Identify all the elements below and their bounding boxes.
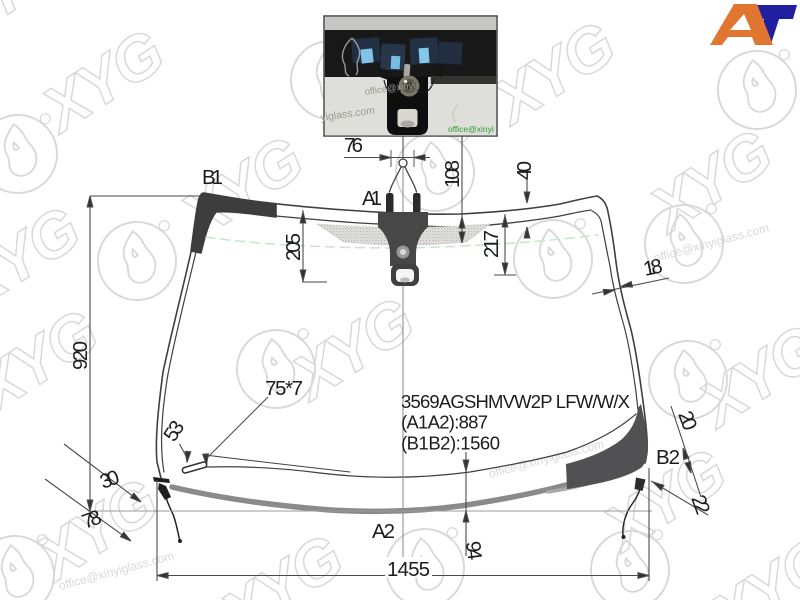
svg-text:108: 108 bbox=[441, 160, 464, 188]
svg-text:40: 40 bbox=[513, 161, 536, 180]
svg-text:(A1A2):887: (A1A2):887 bbox=[401, 412, 488, 433]
svg-text:75*7: 75*7 bbox=[265, 377, 303, 400]
svg-text:(B1B2):1560: (B1B2):1560 bbox=[401, 433, 500, 454]
svg-text:205: 205 bbox=[282, 233, 305, 261]
svg-text:94: 94 bbox=[461, 540, 486, 562]
svg-text:B1: B1 bbox=[202, 166, 223, 189]
svg-text:217: 217 bbox=[480, 230, 503, 258]
svg-text:office@xinyi: office@xinyi bbox=[448, 124, 494, 134]
svg-text:3569AGSHMVW2P LFW/W/X: 3569AGSHMVW2P LFW/W/X bbox=[401, 391, 630, 412]
svg-text:76: 76 bbox=[344, 134, 363, 157]
svg-text:1455: 1455 bbox=[387, 558, 430, 581]
svg-text:920: 920 bbox=[69, 341, 92, 370]
svg-text:B2: B2 bbox=[656, 446, 680, 469]
svg-text:A1: A1 bbox=[362, 187, 382, 210]
svg-text:A2: A2 bbox=[372, 520, 395, 543]
